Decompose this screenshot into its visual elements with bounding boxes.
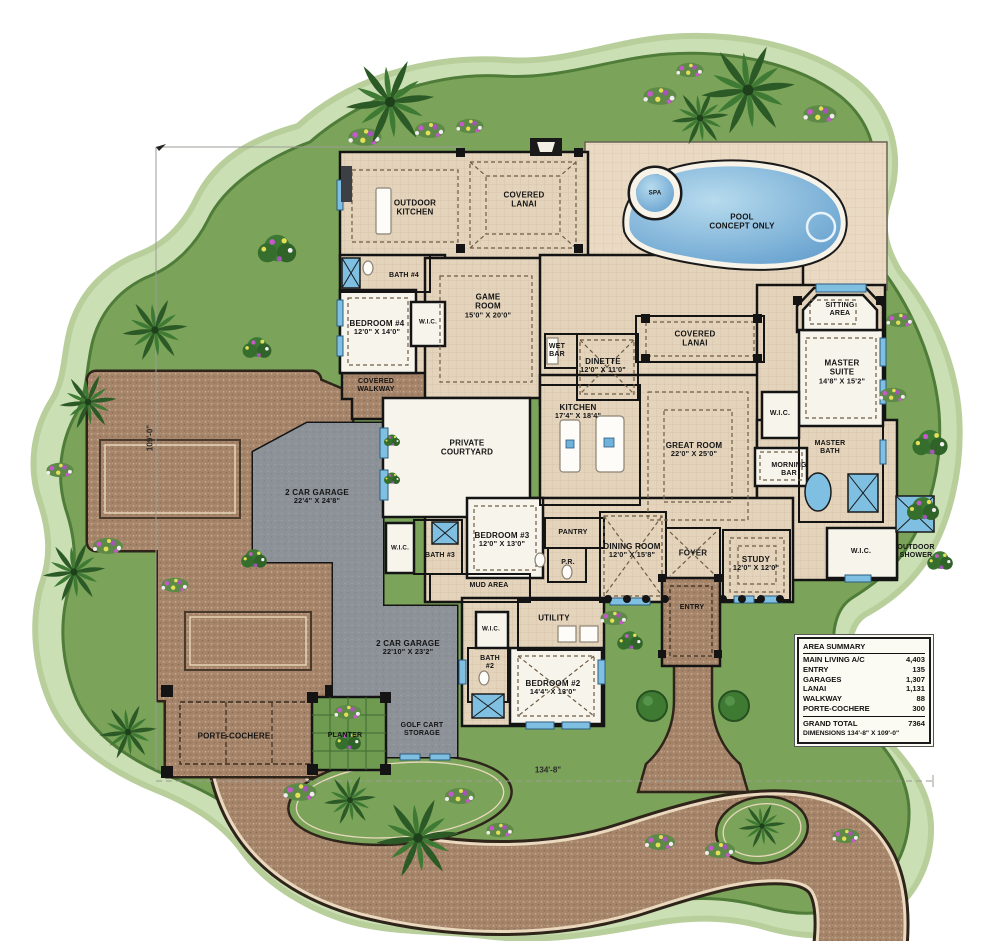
label-kitchen: KITCHEN17'4" X 18'4" [555, 403, 601, 421]
label-utility: UTILITY [538, 613, 570, 622]
summary-row: MAIN LIVING A/C4,403 [803, 655, 925, 665]
summary-row: ENTRY135 [803, 665, 925, 675]
label-pool: POOLCONCEPT ONLY [709, 213, 774, 232]
label-wic4: W.I.C. [419, 318, 437, 325]
label-spa: SPA [649, 189, 662, 196]
label-wic2: W.I.C. [482, 625, 500, 632]
label-pr: P.R. [561, 559, 575, 567]
summary-row: GARAGES1,307 [803, 675, 925, 685]
label-bedroom2: BEDROOM #214'4" X 13'0" [526, 679, 581, 697]
label-planter: PLANTER [328, 732, 362, 740]
summary-row: LANAI1,131 [803, 684, 925, 694]
label-game-room: GAMEROOM15'0" X 20'0" [465, 292, 511, 319]
label-garage1: 2 CAR GARAGE22'4" X 24'8" [285, 488, 349, 506]
summary-grand-total: GRAND TOTAL7364 [803, 716, 925, 729]
label-study: STUDY12'0" X 12'0" [733, 555, 779, 573]
area-summary-table: AREA SUMMARY MAIN LIVING A/C4,403 ENTRY1… [797, 637, 931, 744]
label-great-room: GREAT ROOM22'0" X 25'0" [666, 441, 723, 459]
dimension-width: 134'-8" [535, 766, 561, 775]
label-wet-bar: WETBAR [549, 343, 565, 360]
summary-row: PORTE-COCHERE300 [803, 704, 925, 714]
label-wic-master: W.I.C. [770, 410, 790, 418]
label-covered-lanai-top: COVEREDLANAI [504, 191, 545, 210]
entry-tower [662, 578, 720, 666]
area-summary-title: AREA SUMMARY [803, 642, 925, 654]
label-bath4: BATH #4 [389, 272, 419, 280]
label-garage2: 2 CAR GARAGE22'10" X 23'2" [376, 639, 440, 657]
label-foyer: FOYER [679, 548, 708, 557]
site-plan: OUTDOORKITCHEN COVEREDLANAI SPA POOLCONC… [0, 0, 1000, 941]
site-plan-art [0, 0, 1000, 941]
label-wic3: W.I.C. [391, 544, 409, 551]
label-outdoor-shower: OUTDOORSHOWER [897, 544, 934, 561]
label-porte-cochere: PORTE-COCHERE [198, 731, 271, 740]
label-master-suite: MASTERSUITE14'8" X 15'2" [819, 358, 865, 385]
label-covered-lanai-mid: COVEREDLANAI [675, 330, 716, 349]
dimension-height: 109'-0" [146, 425, 155, 451]
summary-row: WALKWAY88 [803, 694, 925, 704]
label-dining-room: DINING ROOM12'0" X 15'8" [603, 542, 660, 560]
label-bedroom3: BEDROOM #312'0" X 13'0" [475, 531, 530, 549]
label-golf-cart: GOLF CARTSTORAGE [401, 722, 444, 739]
summary-dimensions: DIMENSIONS 134'-8" X 109'-0" [803, 730, 925, 739]
label-master-bath: MASTERBATH [815, 440, 846, 457]
label-morning-bar: MORNINGBAR [771, 462, 806, 479]
label-bath3: BATH #3 [425, 552, 455, 560]
label-wic-master2: W.I.C. [851, 548, 871, 556]
label-bedroom4: BEDROOM #412'0" X 14'0" [350, 319, 405, 337]
label-entry: ENTRY [680, 604, 704, 612]
label-pantry: PANTRY [558, 529, 587, 537]
label-courtyard: PRIVATECOURTYARD [441, 439, 493, 458]
label-sitting-area: SITTINGAREA [825, 302, 854, 319]
label-dinette: DINETTE12'0" X 11'0" [580, 357, 626, 375]
label-mud-area: MUD AREA [469, 582, 508, 590]
label-outdoor-kitchen: OUTDOORKITCHEN [394, 199, 436, 218]
label-bath2: BATH#2 [480, 655, 500, 672]
label-covered-walkway: COVEREDWALKWAY [357, 378, 394, 395]
